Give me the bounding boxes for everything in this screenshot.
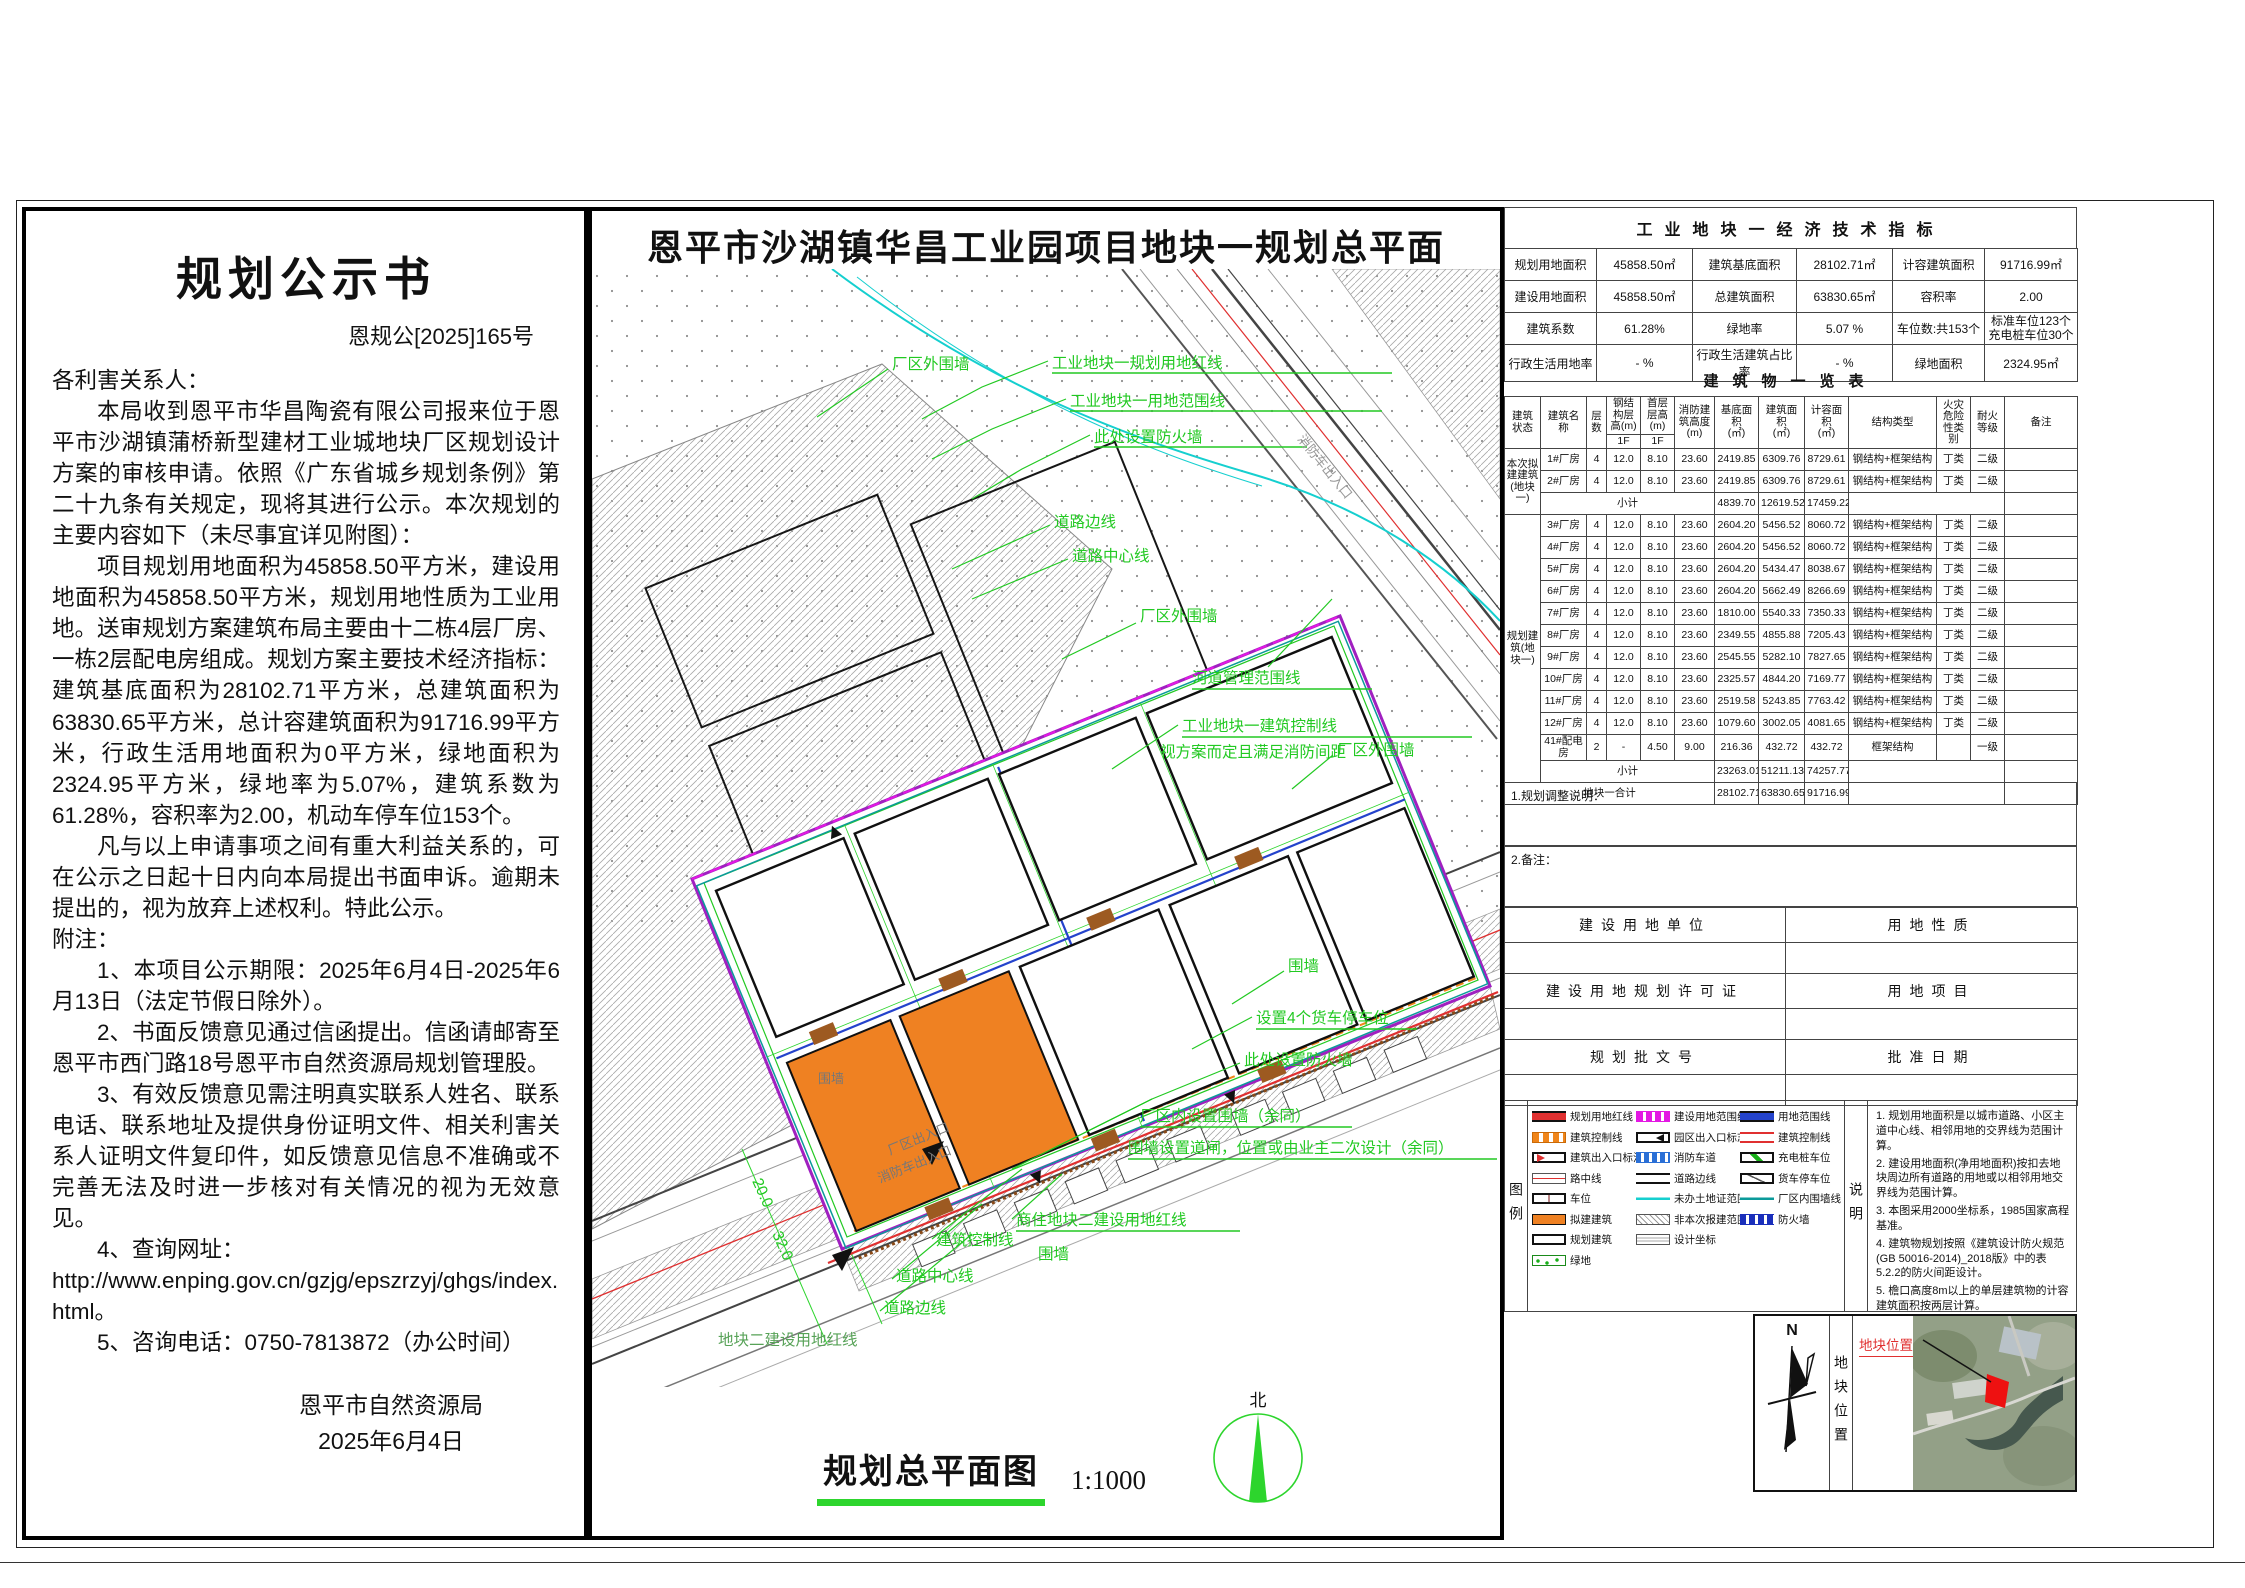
field-land-use: 用地性质 (1786, 908, 2078, 943)
annotation-firewall: 此处设置防火墙 (1094, 428, 1203, 446)
table-row: 11#厂房412.08.1023.602519.585243.857763.42… (1505, 691, 2078, 713)
annotation-wall: 围墙 (1038, 1245, 1069, 1263)
col-floors: 层数 (1587, 397, 1607, 449)
legend-item: 绿地 (1532, 1253, 1634, 1268)
legend-item-label: 消防车道 (1674, 1150, 1716, 1165)
legend-item-label: 非本次报建范围 (1674, 1212, 1748, 1227)
col-fire-class: 火灾危险性类别 (1937, 397, 1971, 449)
header-row: 建筑状态 建筑名称 层数 钢结构层高(m) 首层层高(m) 消防建筑高度(m) … (1505, 397, 2078, 435)
site-plan-title: 恩平市沙湖镇华昌工业园项目地块一规划总平面 (592, 219, 1500, 271)
legend-item: 车位 (1532, 1191, 1634, 1206)
table-row: 10#厂房412.08.1023.602325.574844.207169.77… (1505, 669, 2078, 691)
notes-label: 说明 (1844, 1101, 1868, 1311)
notice-doc-number: 恩规公[2025]165号 (52, 319, 534, 351)
note-line: 3. 本图采用2000坐标系，1985国家高程基准。 (1876, 1204, 2070, 1234)
ind-value: 61.28% (1597, 313, 1693, 345)
col-steel-1f: 1F (1607, 434, 1641, 449)
notice-paragraph: 3、有效反馈意见需注明真实联系人姓名、联系电话、联系地址及提供身份证明文件、相关… (52, 1079, 560, 1234)
legend-swatch (1636, 1132, 1670, 1143)
ind-value: 5.07 % (1797, 313, 1893, 345)
annotation-truck-parking: 设置4个货车停车位 (1256, 1009, 1389, 1027)
ind-value: 45858.50㎡ (1597, 281, 1693, 313)
location-side-label: 地块位置 (1830, 1316, 1853, 1490)
ind-label: 计容建筑面积 (1893, 249, 1985, 281)
remark-label: 2.备注： (1511, 853, 1557, 867)
approval-table: 建设用地单位用地性质 建设用地规划许可证用地项目 规划批文号批准日期 (1504, 907, 2078, 1106)
legend-item-label: 建筑控制线 (1778, 1130, 1831, 1145)
annotation-road-edge: 道路边线 (1054, 513, 1116, 531)
legend-swatch (1636, 1234, 1670, 1245)
legend-swatch (1636, 1193, 1670, 1204)
legend-item-label: 车位 (1570, 1191, 1591, 1206)
note-line: 2. 建设用地面积(净用地面积)按扣去地块周边所有道路的用地或以相邻用地交界线为… (1876, 1157, 2070, 1202)
issuing-authority: 恩平市自然资源局 (222, 1387, 560, 1424)
legend-swatch (1532, 1152, 1566, 1163)
subtotal-row: 小计4839.7012619.5217459.22 (1505, 493, 2078, 515)
parking-standard: 标准车位123个 (1987, 315, 2075, 329)
legend-swatch (1532, 1173, 1566, 1184)
legend-item: 设计坐标 (1636, 1232, 1738, 1247)
annotation-wall: 围墙 (1288, 957, 1319, 975)
satellite-thumbnail (1913, 1316, 2075, 1490)
notice-paragraph: 5、咨询电话：0750-7813872（办公时间） (52, 1327, 560, 1358)
table-row (1505, 943, 2078, 974)
table-row: 规划建筑(地块一) 3#厂房412.08.1023.602604.205456.… (1505, 515, 2078, 537)
table-row: 6#厂房412.08.1023.602604.205662.498266.69钢… (1505, 581, 2078, 603)
location-callout: 地块位置 (1859, 1334, 1913, 1357)
building-list-title: 建筑物一览表 (1504, 365, 2077, 396)
table-row: 建筑系数61.28% 绿地率5.07 % 车位数:共153个 标准车位123个充… (1505, 313, 2078, 345)
empty-cell (1786, 1009, 2078, 1040)
legend-item: 厂区内围墙线 (1740, 1191, 1842, 1206)
ind-label: 容积率 (1893, 281, 1985, 313)
legend-item: 消防车道 (1636, 1150, 1738, 1165)
field-land-permit: 建设用地规划许可证 (1505, 974, 1786, 1009)
indicators-table: 规划用地面积45858.50㎡ 建筑基底面积28102.71㎡ 计容建筑面积91… (1504, 248, 2078, 382)
field-land-project: 用地项目 (1786, 974, 2078, 1009)
table-row: 2#厂房412.08.1023.602419.856309.768729.61钢… (1505, 471, 2078, 493)
table-row: 5#厂房412.08.1023.602604.205434.478038.67钢… (1505, 559, 2078, 581)
ind-label: 车位数:共153个 (1893, 313, 1985, 345)
legend-item-label: 建设用地范围线 (1674, 1109, 1748, 1124)
annotation-block2-redline: 商住地块二建设用地红线 (1016, 1211, 1187, 1229)
legend-col-3: 用地范围线建筑控制线充电桩车位货车停车位厂区内围墙线防火墙 (1740, 1109, 1842, 1307)
issue-date: 2025年6月4日 (222, 1423, 560, 1460)
group-label-proposed: 本次拟建建筑(地块一) (1505, 449, 1541, 515)
legend-item: 非本次报建范围 (1636, 1212, 1738, 1227)
ind-label: 建设用地面积 (1505, 281, 1597, 313)
col-name: 建筑名称 (1541, 397, 1587, 449)
legend-item-label: 规划建筑 (1570, 1232, 1612, 1247)
annotation-outer-wall: 厂区外围墙 (1140, 607, 1218, 625)
legend-item: 充电桩车位 (1740, 1150, 1842, 1165)
legend-swatch (1740, 1214, 1774, 1225)
planning-notice-sheet: 规划公示书 恩规公[2025]165号 各利害关系人：本局收到恩平市华昌陶瓷有限… (0, 0, 2245, 1588)
col-capacity-area: 计容面积(㎡) (1805, 397, 1849, 449)
legend-item-label: 设计坐标 (1674, 1232, 1716, 1247)
table-row: 4#厂房412.08.1023.602604.205456.528060.72钢… (1505, 537, 2078, 559)
location-strip: N 地块位置 地块位置 (1753, 1314, 2077, 1492)
annotation-control-line: 工业地块一建筑控制线 (1182, 717, 1337, 735)
legend-item-label: 厂区内围墙线 (1778, 1191, 1841, 1206)
legend-item-label: 防火墙 (1778, 1212, 1810, 1227)
adjustment-note-box: 1.规划调整说明： (1504, 782, 2077, 846)
legend-item: 路中线 (1532, 1171, 1634, 1186)
notice-paragraph: 凡与以上申请事项之间有重大利益关系的，可在公示之日起十日内向本局提出书面申诉。逾… (52, 831, 560, 924)
field-approval-date: 批准日期 (1786, 1040, 2078, 1075)
legend-swatch (1740, 1173, 1774, 1184)
col-steel-height: 钢结构层高(m) (1607, 397, 1641, 435)
annotation-road-center: 道路中心线 (896, 1267, 974, 1285)
indicators-section: 工业地块一经济技术指标 规划用地面积45858.50㎡ 建筑基底面积28102.… (1504, 207, 2077, 382)
legend-item: 建筑出入口标注 (1532, 1150, 1634, 1165)
annotation-outer-wall: 厂区外围墙 (1337, 741, 1415, 759)
legend-swatch (1532, 1255, 1566, 1266)
empty-cell (1505, 943, 1786, 974)
indicators-title: 工业地块一经济技术指标 (1504, 207, 2077, 248)
annotation-inner-wall: 厂区内设置围墙（余同） (1140, 1106, 1311, 1125)
legend-item-label: 道路边线 (1674, 1171, 1716, 1186)
legend-swatch (1636, 1111, 1670, 1122)
annotation-control-note: 视方案而定且满足消防间距 (1160, 743, 1346, 761)
annotation-scope: 工业地块一用地范围线 (1070, 392, 1225, 410)
north-label: 北 (1250, 1391, 1267, 1410)
legend-item: 建筑控制线 (1532, 1130, 1634, 1145)
legend-item-label: 建筑出入口标注 (1570, 1150, 1644, 1165)
annotation-road-edge: 道路边线 (884, 1299, 946, 1317)
ind-value: 28102.71㎡ (1797, 249, 1893, 281)
notice-body: 各利害关系人：本局收到恩平市华昌陶瓷有限公司报来位于恩平市沙湖镇蒲桥新型建材工业… (52, 365, 560, 1359)
map-scale: 1:1000 (1071, 1465, 1146, 1496)
table-row: 12#厂房412.08.1023.601079.603002.054081.65… (1505, 713, 2078, 735)
legend-item: 建设用地范围线 (1636, 1109, 1738, 1124)
notes-list: 1. 规划用地面积是以城市道路、小区主道中心线、相邻用地的交界线为范围计算。2.… (1868, 1101, 2076, 1311)
site-plan-drawing: 厂区外围墙 工业地块一规划用地红线 工业地块一用地范围线 此处设置防火墙 道路边… (592, 269, 1500, 1387)
legend-item-label: 园区出入口标志 (1674, 1130, 1748, 1145)
legend-swatch (1740, 1111, 1774, 1122)
notice-paragraph: 2、书面反馈意见通过信函提出。信函请邮寄至恩平市西门路18号恩平市自然资源局规划… (52, 1017, 560, 1079)
legend-item-label: 拟建建筑 (1570, 1212, 1612, 1227)
ind-label: 建筑系数 (1505, 313, 1597, 345)
table-row: 9#厂房412.08.1023.602545.555282.107827.65钢… (1505, 647, 2078, 669)
table-row: 规划批文号批准日期 (1505, 1040, 2078, 1075)
ind-value: 2.00 (1985, 281, 2078, 313)
legend-item: 园区出入口标志 (1636, 1130, 1738, 1145)
location-cell: 地块位置 (1853, 1316, 2075, 1490)
annotation-road-center: 道路中心线 (1072, 547, 1150, 565)
table-row: 41#配电房2-4.509.00216.36432.72432.72框架结构一级 (1505, 735, 2078, 761)
ind-label: 总建筑面积 (1693, 281, 1797, 313)
legend-swatch (1636, 1214, 1670, 1225)
annotation-building-control: 建筑控制线 (936, 1231, 1014, 1249)
legend-swatch (1532, 1214, 1566, 1225)
north-letter: N (1786, 1322, 1798, 1340)
legend-item-label: 充电桩车位 (1778, 1150, 1831, 1165)
parking-charging: 充电桩车位30个 (1987, 329, 2075, 343)
legend-item: 规划用地红线 (1532, 1109, 1634, 1124)
subtotal-row: 小计23263.0151211.1374257.77 (1505, 761, 2078, 783)
annotation-outer-wall: 厂区外围墙 (892, 355, 970, 373)
notice-paragraph: 各利害关系人： (52, 365, 560, 396)
site-plan-panel: 恩平市沙湖镇华昌工业园项目地块一规划总平面 (588, 207, 1504, 1540)
table-row: 本次拟建建筑(地块一) 1#厂房412.08.1023.602419.85630… (1505, 449, 2078, 471)
map-caption: 规划总平面图 (817, 1444, 1045, 1506)
legend-swatch (1740, 1132, 1774, 1143)
field-approval-no: 规划批文号 (1505, 1040, 1786, 1075)
legend-col-1: 规划用地红线建筑控制线建筑出入口标注路中线车位拟建建筑规划建筑绿地 (1532, 1109, 1634, 1307)
table-row: 建设用地面积45858.50㎡ 总建筑面积63830.65㎡ 容积率2.00 (1505, 281, 2078, 313)
ind-label: 绿地率 (1693, 313, 1797, 345)
empty-cell (1786, 943, 2078, 974)
table-row: 建设用地规划许可证用地项目 (1505, 974, 2078, 1009)
note-line: 1. 规划用地面积是以城市道路、小区主道中心线、相邻用地的交界线为范围计算。 (1876, 1109, 2070, 1154)
legend-item: 建筑控制线 (1740, 1130, 1842, 1145)
notice-signature-block: 恩平市自然资源局 2025年6月4日 (52, 1387, 560, 1461)
col-first-height: 首层层高(m) (1641, 397, 1675, 435)
notice-document-panel: 规划公示书 恩规公[2025]165号 各利害关系人：本局收到恩平市华昌陶瓷有限… (22, 207, 588, 1540)
col-first-1f: 1F (1641, 434, 1675, 449)
col-fire-height: 消防建筑高度(m) (1675, 397, 1715, 449)
notice-title: 规划公示书 (52, 243, 560, 309)
ind-label: 规划用地面积 (1505, 249, 1597, 281)
legend-col-2: 建设用地范围线园区出入口标志消防车道道路边线未办土地证范围线非本次报建范围设计坐… (1636, 1109, 1738, 1307)
notice-paragraph: 4、查询网址： (52, 1234, 560, 1265)
legend-swatch (1636, 1152, 1670, 1163)
legend-swatch (1740, 1152, 1774, 1163)
col-remark: 备注 (2005, 397, 2078, 449)
legend-item-label: 货车停车位 (1778, 1171, 1831, 1186)
table-row: 建设用地单位用地性质 (1505, 908, 2078, 943)
legend-label: 图例 (1505, 1101, 1528, 1311)
ind-value: 63830.65㎡ (1797, 281, 1893, 313)
table-row: 8#厂房412.08.1023.602349.554855.887205.43钢… (1505, 625, 2078, 647)
legend-item: 未办土地证范围线 (1636, 1191, 1738, 1206)
legend-item: 用地范围线 (1740, 1109, 1842, 1124)
legend-section: 图例 规划用地红线建筑控制线建筑出入口标注路中线车位拟建建筑规划建筑绿地 建设用… (1504, 1100, 2077, 1312)
building-list-table: 建筑状态 建筑名称 层数 钢结构层高(m) 首层层高(m) 消防建筑高度(m) … (1504, 396, 2078, 805)
legend-item-label: 路中线 (1570, 1171, 1602, 1186)
legend-swatch (1532, 1234, 1566, 1245)
table-row: 7#厂房412.08.1023.601810.005540.337350.33钢… (1505, 603, 2078, 625)
north-box: N (1755, 1316, 1830, 1490)
notice-paragraph: 附注： (52, 924, 560, 955)
annotation-firewall: 此处设置防火墙 (1244, 1051, 1353, 1069)
legend-item-label: 绿地 (1570, 1253, 1591, 1268)
group-label-planned: 规划建筑(地块一) (1505, 515, 1541, 783)
note-line: 4. 建筑物规划按照《建筑设计防火规范 (GB 50016-2014)_2018… (1876, 1237, 2070, 1282)
legend-swatch (1740, 1193, 1774, 1204)
notice-paragraph: 1、本项目公示期限：2025年6月4日-2025年6月13日（法定节假日除外）。 (52, 955, 560, 1017)
ind-label: 建筑基底面积 (1693, 249, 1797, 281)
col-fire-grade: 耐火等级 (1971, 397, 2005, 449)
col-build-area: 建筑面积(㎡) (1759, 397, 1805, 449)
annotation-redline: 工业地块一规划用地红线 (1052, 354, 1223, 372)
col-base-area: 基底面积(㎡) (1715, 397, 1759, 449)
ind-value-parking: 标准车位123个充电桩车位30个 (1985, 313, 2078, 345)
col-structure: 结构类型 (1849, 397, 1937, 449)
legend-item-label: 建筑控制线 (1570, 1130, 1623, 1145)
tables-panel: 工业地块一经济技术指标 规划用地面积45858.50㎡ 建筑基底面积28102.… (1504, 207, 2077, 1540)
annotation-block2-redline-2: 地块二建设用地红线 (718, 1331, 858, 1349)
compass-rose-icon (1762, 1340, 1822, 1460)
building-list-section: 建筑物一览表 建筑状态 建筑名称 层数 钢结构层高(m) 首层层高(m) 消防建… (1504, 365, 2077, 805)
legend-swatch (1532, 1193, 1566, 1204)
annotation-gate: 围墙设置道闸，位置或由业主二次设计（余同） (1128, 1138, 1454, 1157)
table-row: 规划用地面积45858.50㎡ 建筑基底面积28102.71㎡ 计容建筑面积91… (1505, 249, 2078, 281)
annotation-river-line: 河道管理范围线 (1192, 669, 1301, 687)
table-row (1505, 1009, 2078, 1040)
map-caption-row: 规划总平面图 1:1000 北 (817, 1390, 1310, 1506)
col-status: 建筑状态 (1505, 397, 1541, 449)
notice-paragraph: 项目规划用地面积为45858.50平方米，建设用地面积为45858.50平方米，… (52, 551, 560, 830)
legend-item-label: 用地范围线 (1778, 1109, 1831, 1124)
legend-swatch (1636, 1173, 1670, 1184)
field-land-unit: 建设用地单位 (1505, 908, 1786, 943)
north-needle (1249, 1414, 1267, 1502)
legend-item: 道路边线 (1636, 1171, 1738, 1186)
adjustment-note-label: 1.规划调整说明： (1511, 789, 1605, 803)
legend-item: 规划建筑 (1532, 1232, 1634, 1247)
legend-swatch (1532, 1132, 1566, 1143)
north-compass: 北 (1206, 1390, 1310, 1506)
legend-item: 防火墙 (1740, 1212, 1842, 1227)
legend-item: 拟建建筑 (1532, 1212, 1634, 1227)
annotation-wall-gray: 围墙 (818, 1071, 844, 1086)
remark-box: 2.备注： (1504, 846, 2077, 907)
sheet-bottom-rule (0, 1562, 2245, 1563)
note-line: 5. 檐口高度8m以上的单层建筑物的计容建筑面积按两层计算。 (1876, 1284, 2070, 1314)
legend-item: 货车停车位 (1740, 1171, 1842, 1186)
ind-value: 45858.50㎡ (1597, 249, 1693, 281)
legend-item-label: 规划用地红线 (1570, 1109, 1633, 1124)
notice-paragraph: 本局收到恩平市华昌陶瓷有限公司报来位于恩平市沙湖镇蒲桥新型建材工业城地块厂区规划… (52, 396, 560, 551)
notice-paragraph: http://www.enping.gov.cn/gzjg/epszrzyj/g… (52, 1265, 560, 1327)
legend-columns: 规划用地红线建筑控制线建筑出入口标注路中线车位拟建建筑规划建筑绿地 建设用地范围… (1528, 1101, 1844, 1311)
legend-swatch (1532, 1111, 1566, 1122)
ind-value: 91716.99㎡ (1985, 249, 2078, 281)
empty-cell (1505, 1009, 1786, 1040)
